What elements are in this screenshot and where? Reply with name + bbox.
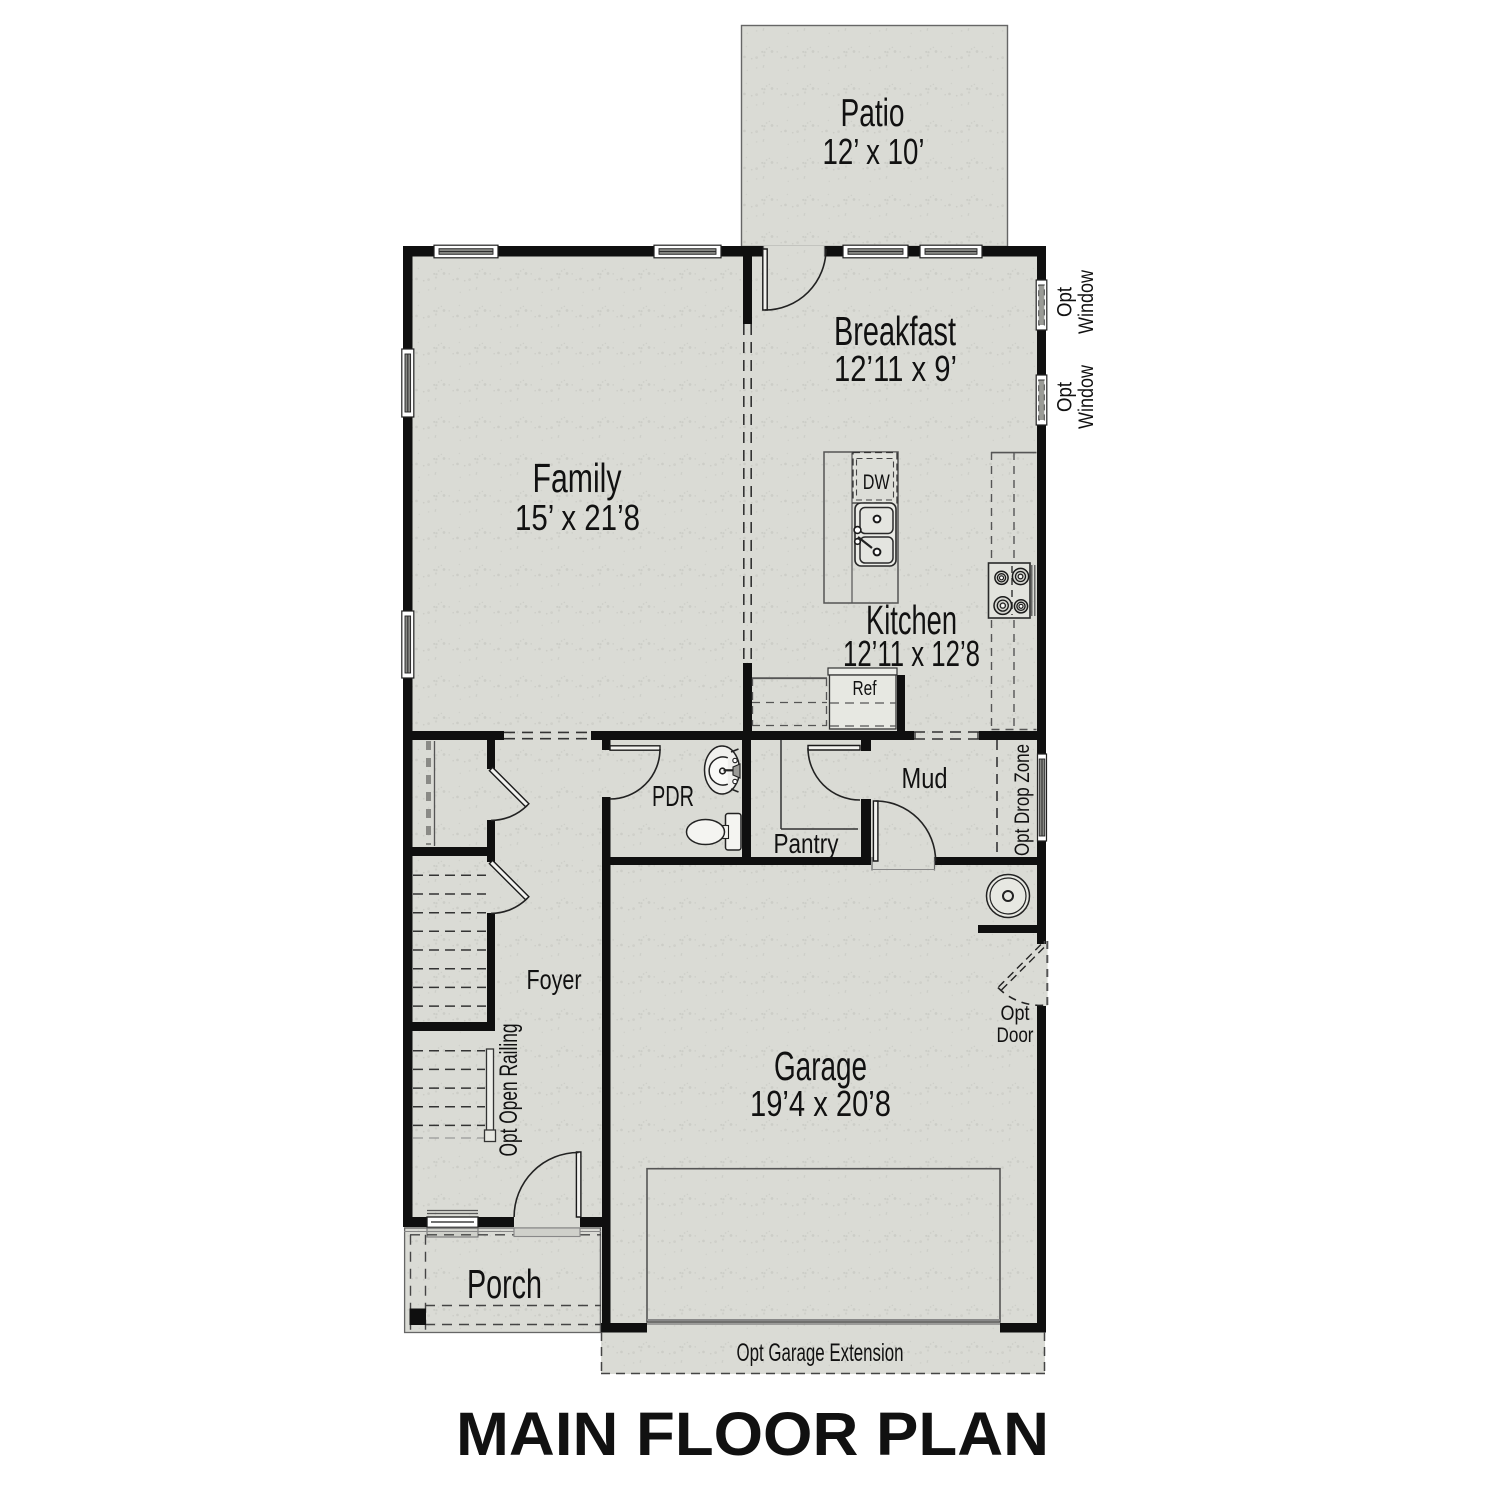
svg-text:Pantry: Pantry xyxy=(774,828,839,859)
svg-text:Door: Door xyxy=(997,1024,1034,1047)
svg-text:Mud: Mud xyxy=(902,763,948,795)
svg-text:MAIN FLOOR PLAN: MAIN FLOOR PLAN xyxy=(456,1400,1049,1468)
svg-text:Window: Window xyxy=(1075,364,1098,429)
svg-text:Opt: Opt xyxy=(1054,287,1077,317)
svg-text:DW: DW xyxy=(863,470,891,494)
svg-text:Patio: Patio xyxy=(841,92,905,135)
svg-text:PDR: PDR xyxy=(652,781,694,813)
svg-text:Opt: Opt xyxy=(1001,1002,1030,1025)
svg-text:Ref: Ref xyxy=(853,678,877,700)
svg-text:12’11 x 9’: 12’11 x 9’ xyxy=(834,348,957,389)
svg-text:Window: Window xyxy=(1075,269,1098,334)
svg-text:Opt: Opt xyxy=(1054,382,1077,412)
svg-text:Porch: Porch xyxy=(467,1261,542,1307)
svg-text:Foyer: Foyer xyxy=(527,964,582,995)
svg-text:Opt Open Railing: Opt Open Railing xyxy=(495,1024,523,1157)
svg-text:Opt Garage Extension: Opt Garage Extension xyxy=(737,1339,904,1367)
svg-text:Family: Family xyxy=(533,455,622,501)
svg-text:15’ x 21’8: 15’ x 21’8 xyxy=(515,497,640,538)
svg-text:19’4 x 20’8: 19’4 x 20’8 xyxy=(750,1083,891,1124)
svg-text:12’ x 10’: 12’ x 10’ xyxy=(823,131,925,172)
svg-text:12’11 x 12’8: 12’11 x 12’8 xyxy=(843,633,980,674)
svg-text:Opt Drop Zone: Opt Drop Zone xyxy=(1011,744,1034,856)
